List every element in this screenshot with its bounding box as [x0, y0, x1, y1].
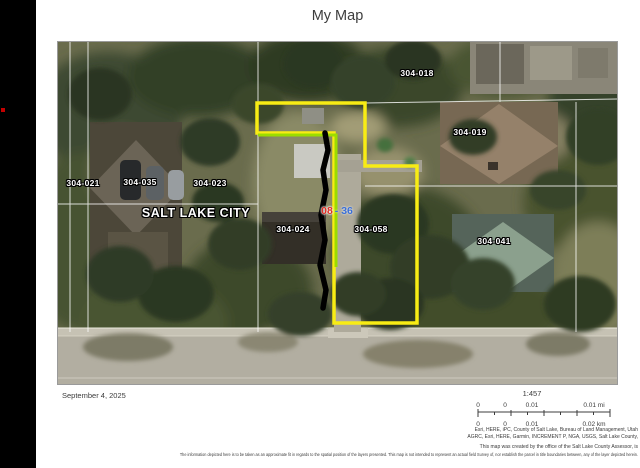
- city-label: SALT LAKE CITY: [142, 206, 250, 220]
- parcel-label: 304-041: [477, 236, 510, 246]
- selection-label: 08- 36: [321, 205, 353, 217]
- print-page: My Map: [0, 0, 640, 468]
- scale-ruler: [478, 409, 610, 417]
- parcel-label: 304-058: [354, 224, 387, 234]
- parcel-label: 304-019: [453, 127, 486, 137]
- disclaimer-line-1: This map was created by the office of th…: [480, 444, 638, 450]
- parcel-label: 304-024: [276, 224, 309, 234]
- parcel-label: 304-023: [193, 178, 226, 188]
- parcel-label: 304-035: [123, 177, 156, 187]
- scale-label-mi-001: 0.01: [526, 402, 539, 409]
- left-black-bar: [0, 0, 36, 468]
- map-viewport: 304-021 304-035 304-023 304-018 304-019 …: [57, 41, 618, 385]
- scale-label-mi-0a: 0: [476, 402, 480, 409]
- disclaimer-line-2: The information depicted here is to be t…: [180, 452, 638, 457]
- map-date: September 4, 2025: [62, 391, 126, 400]
- scale-label-mi-end: 0.01 mi: [583, 402, 604, 409]
- map-title: My Map: [57, 8, 618, 24]
- parcel-label: 304-018: [400, 68, 433, 78]
- parcel-label: 304-021: [66, 178, 99, 188]
- scale-ratio: 1:457: [523, 389, 542, 398]
- credits-line-2: AGRC, Esri, HERE, Garmin, INCREMENT P, N…: [467, 434, 638, 441]
- scale-bar: 1:457 0 0 0.01 0.01 mi 0 0 0.01 0.02 km: [470, 386, 640, 430]
- selection-label-red: 08: [321, 205, 333, 217]
- credits-line-1: Esri, HERE, iPC, County of Salt Lake, Bu…: [467, 427, 638, 434]
- selection-label-blue: - 36: [335, 205, 353, 217]
- red-marker-dot: [1, 108, 5, 112]
- scale-label-mi-0b: 0: [503, 402, 507, 409]
- credits: Esri, HERE, iPC, County of Salt Lake, Bu…: [467, 427, 638, 440]
